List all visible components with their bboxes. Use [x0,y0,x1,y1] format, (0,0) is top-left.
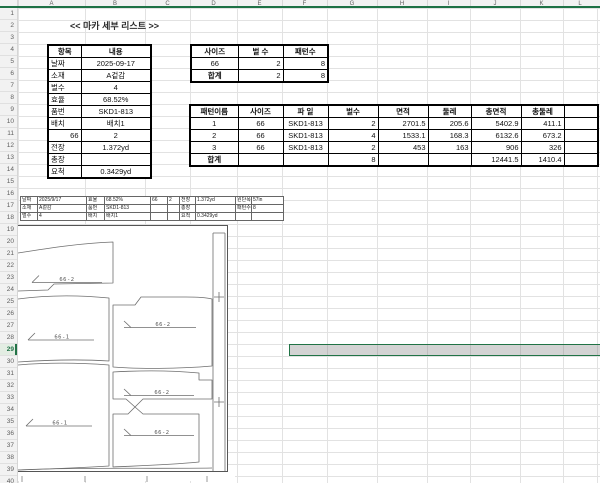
pattern-cell-empty[interactable] [564,154,598,167]
piece-label: 66-2 [155,322,170,328]
marker-drawing: 66-2 66-1 66-2 66-1 66-2 66-2 [18,226,227,471]
row-header-37[interactable]: 37 [0,440,17,452]
row-header-20[interactable]: 20 [0,236,17,248]
pattern-cell[interactable]: 205.6 [428,118,471,130]
mini-cell: 57in [252,197,284,205]
row-header-13[interactable]: 13 [0,152,17,164]
pattern-cell[interactable]: 2701.5 [378,118,428,130]
info-header-item[interactable]: 항목 [48,45,81,58]
pattern-piece [18,242,113,291]
pattern-piece [113,407,199,467]
info-label[interactable]: 날짜 [48,58,81,70]
info-value[interactable]: A겉감 [81,70,151,82]
piece-label: 66-1 [54,335,69,341]
pattern-piece [18,468,212,470]
size-cell[interactable]: 2 [238,58,283,70]
pattern-total-cell[interactable]: 12441.5 [471,154,521,167]
row-selection-highlight[interactable] [289,344,600,356]
pattern-cell[interactable]: 3 [190,142,238,154]
mini-cell: 요척 [180,213,196,221]
mini-cell: 배치 [87,213,105,221]
row-header-36[interactable]: 36 [0,428,17,440]
mini-cell: 66 [151,197,168,205]
mini-cell: SKD1-813 [105,205,151,213]
mini-cell: 패턴수 [236,205,252,213]
ruler-ticks [17,476,235,483]
pattern-cell[interactable]: 66 [238,118,283,130]
row-header-26[interactable]: 26 [0,308,17,320]
piece-label: 66-2 [154,390,169,396]
size-cell[interactable]: 66 [191,58,238,70]
row-header-32[interactable]: 32 [0,380,17,392]
piece-label: 66-2 [154,430,169,436]
row-header-1[interactable]: 1 [0,8,17,20]
row-header-5[interactable]: 5 [0,56,17,68]
row-header-7[interactable]: 7 [0,80,17,92]
mini-cell: 2 [168,197,180,205]
mini-cell: A겉감 [38,205,87,213]
pattern-cell[interactable]: 5402.9 [471,118,521,130]
row-header-34[interactable]: 34 [0,404,17,416]
pattern-piece [113,371,212,407]
pattern-cell[interactable]: 906 [471,142,521,154]
info-label[interactable]: 66 [48,130,81,142]
mini-cell: 68.52% [105,197,151,205]
row-header-4[interactable]: 4 [0,44,17,56]
pattern-cell-empty[interactable] [378,154,428,167]
info-value[interactable]: SKD1-813 [81,106,151,118]
pattern-cell[interactable]: 4 [328,130,378,142]
info-label[interactable]: 요척 [48,166,81,179]
row-header-27[interactable]: 27 [0,320,17,332]
spreadsheet: ABCDEFGHIJKL 123456789101112131415161718… [0,0,600,483]
row-header-9[interactable]: 9 [0,104,17,116]
pattern-cell[interactable]: 2 [328,118,378,130]
info-header-content[interactable]: 내용 [81,45,151,58]
row-header-40[interactable]: 40 [0,476,17,483]
pattern-cell-empty[interactable] [283,154,328,167]
pattern-header[interactable]: 총면적 [471,105,521,118]
row-header-30[interactable]: 30 [0,356,17,368]
pattern-cell[interactable]: 66 [238,142,283,154]
sheet-title[interactable]: << 마카 세부 리스트 >> [70,19,159,32]
pattern-header[interactable]: 둘레 [428,105,471,118]
pattern-total-cell[interactable]: 8 [328,154,378,167]
pattern-header[interactable]: 패턴이름 [190,105,238,118]
mini-cell: 1.372yd [196,197,236,205]
row-headers: 1234567891011121314151617181920212223242… [0,8,18,483]
size-header[interactable]: 벌 수 [238,45,283,58]
mini-cell [168,213,180,221]
pattern-cell-empty[interactable] [564,118,598,130]
pattern-piece [113,297,212,368]
row-header-3[interactable]: 3 [0,32,17,44]
pattern-cell[interactable]: 1 [190,118,238,130]
mini-cell: 배치1 [105,213,151,221]
row-header-18[interactable]: 18 [0,212,17,224]
row-header-6[interactable]: 6 [0,68,17,80]
row-header-28[interactable]: 28 [0,332,17,344]
info-value[interactable]: 68.52% [81,94,151,106]
mini-cell: 2025/9/17 [38,197,87,205]
row-header-10[interactable]: 10 [0,116,17,128]
info-table: 항목 내용 날짜 2025-09-17 소재 A겉감 벌수 4 효율 68.52… [47,44,152,179]
pattern-cell[interactable]: SKD1-813 [283,118,328,130]
row-header-15[interactable]: 15 [0,176,17,188]
size-total-label[interactable]: 합계 [191,70,238,83]
selvedge-strip [213,233,225,471]
mini-cell: 소재 [21,205,38,213]
row-header-25[interactable]: 25 [0,296,17,308]
info-value[interactable] [81,154,151,166]
pattern-cell[interactable]: 411.1 [521,118,564,130]
mini-cell [151,205,168,213]
pattern-header[interactable]: 벌수 [328,105,378,118]
marker-plot-area: 66-2 66-1 66-2 66-1 66-2 66-2 [17,225,228,472]
info-value[interactable]: 0.3429yd [81,166,151,179]
info-label[interactable]: 벌수 [48,82,81,94]
mini-cell [236,213,252,221]
size-header[interactable]: 패턴수 [283,45,328,58]
row-header-39[interactable]: 39 [0,464,17,476]
marker-info-strip: 날짜 2025/9/17 효율 68.52% 66 2 전장 1.372yd 원… [20,196,284,221]
info-label[interactable]: 총장 [48,154,81,166]
mini-cell: 4 [38,213,87,221]
pattern-cell[interactable]: 673.2 [521,130,564,142]
row-header-11[interactable]: 11 [0,128,17,140]
info-value[interactable]: 2 [81,130,151,142]
mini-cell: 날짜 [21,197,38,205]
size-cell[interactable]: 8 [283,58,328,70]
mini-cell: 품번 [87,205,105,213]
row-header-21[interactable]: 21 [0,248,17,260]
pattern-piece [18,296,109,362]
pattern-cell-empty[interactable] [428,154,471,167]
row-header-12[interactable]: 12 [0,140,17,152]
row-header-14[interactable]: 14 [0,164,17,176]
pattern-header[interactable]: 사이즈 [238,105,283,118]
pattern-header[interactable]: 면적 [378,105,428,118]
info-label[interactable]: 소재 [48,70,81,82]
info-label[interactable]: 효율 [48,94,81,106]
row-header-23[interactable]: 23 [0,272,17,284]
row-header-2[interactable]: 2 [0,20,17,32]
pattern-cell-empty[interactable] [564,142,598,154]
size-header[interactable]: 사이즈 [191,45,238,58]
pattern-total-label[interactable]: 합계 [190,154,238,167]
info-label[interactable]: 품번 [48,106,81,118]
pattern-header[interactable]: 파 일 [283,105,328,118]
row-header-33[interactable]: 33 [0,392,17,404]
size-cell[interactable]: 2 [238,70,283,83]
pattern-header[interactable]: 총둘레 [521,105,564,118]
mini-cell [168,205,180,213]
marker-ruler [17,472,235,481]
mini-cell: 효율 [87,197,105,205]
row-header-8[interactable]: 8 [0,92,17,104]
mini-cell [252,213,284,221]
piece-label: 66-1 [52,421,67,427]
row-header-31[interactable]: 31 [0,368,17,380]
pattern-table: 패턴이름 사이즈 파 일 벌수 면적 둘레 총면적 총둘레 1 66 SKD1-… [189,104,599,167]
row-header-29[interactable]: 29 [0,344,17,356]
mini-cell: 벌수 [21,213,38,221]
size-table: 사이즈 벌 수 패턴수 66 2 8 합계 2 8 [190,44,329,83]
piece-label: 66-2 [59,277,74,283]
pattern-cell[interactable]: SKD1-813 [283,130,328,142]
pattern-cell[interactable]: 168.3 [428,130,471,142]
pattern-cell[interactable]: 453 [378,142,428,154]
info-value[interactable]: 4 [81,82,151,94]
registration-cross [214,397,224,407]
pattern-total-cell[interactable]: 1410.4 [521,154,564,167]
mini-cell: 전장 [180,197,196,205]
row-header-35[interactable]: 35 [0,416,17,428]
mini-cell: 0.3429yd [196,213,236,221]
pattern-cell[interactable]: 6132.6 [471,130,521,142]
pattern-piece [18,363,109,470]
mini-cell [196,205,236,213]
pattern-cell-empty[interactable] [238,154,283,167]
registration-cross [214,292,224,302]
row-header-19[interactable]: 19 [0,224,17,236]
pattern-cell[interactable]: SKD1-813 [283,142,328,154]
pattern-cell[interactable]: 66 [238,130,283,142]
mini-cell [151,213,168,221]
info-value[interactable]: 2025-09-17 [81,58,151,70]
pattern-cell-empty[interactable] [564,130,598,142]
pattern-cell[interactable]: 1533.1 [378,130,428,142]
pattern-header-empty[interactable] [564,105,598,118]
pattern-cell[interactable]: 163 [428,142,471,154]
row-header-17[interactable]: 17 [0,200,17,212]
pattern-cell[interactable]: 326 [521,142,564,154]
row-header-38[interactable]: 38 [0,452,17,464]
mini-cell: 원단폭 [236,197,252,205]
info-value[interactable]: 1.372yd [81,142,151,154]
row-header-22[interactable]: 22 [0,260,17,272]
row-header-24[interactable]: 24 [0,284,17,296]
mini-cell: 총장 [180,205,196,213]
marker-layout-image[interactable]: 날짜 2025/9/17 효율 68.52% 66 2 전장 1.372yd 원… [17,196,283,481]
size-cell[interactable]: 8 [283,70,328,83]
info-value[interactable]: 배치1 [81,118,151,130]
header-accent-line [0,6,600,8]
row-header-16[interactable]: 16 [0,188,17,200]
mini-cell: 8 [252,205,284,213]
pattern-cell[interactable]: 2 [328,142,378,154]
info-label[interactable]: 배치 [48,118,81,130]
pattern-cell[interactable]: 2 [190,130,238,142]
info-label[interactable]: 전장 [48,142,81,154]
